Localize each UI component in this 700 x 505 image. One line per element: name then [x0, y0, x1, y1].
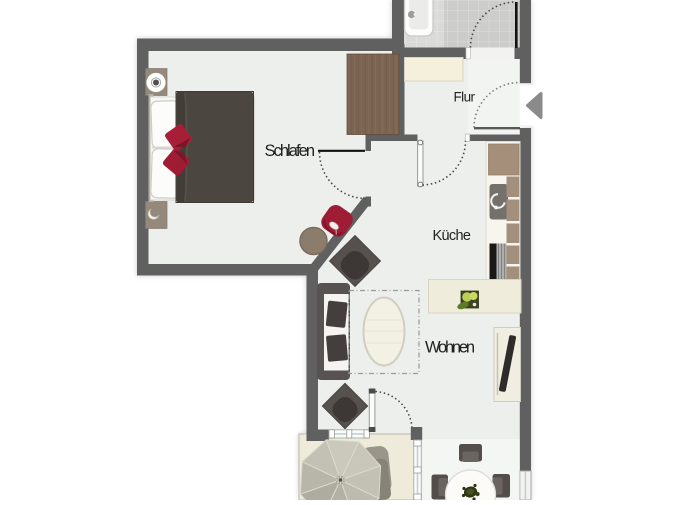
svg-text:Wohnen: Wohnen — [425, 339, 475, 357]
svg-text:Flur: Flur — [454, 89, 476, 104]
svg-text:Schlafen: Schlafen — [265, 142, 316, 160]
svg-text:Küche: Küche — [433, 228, 472, 244]
